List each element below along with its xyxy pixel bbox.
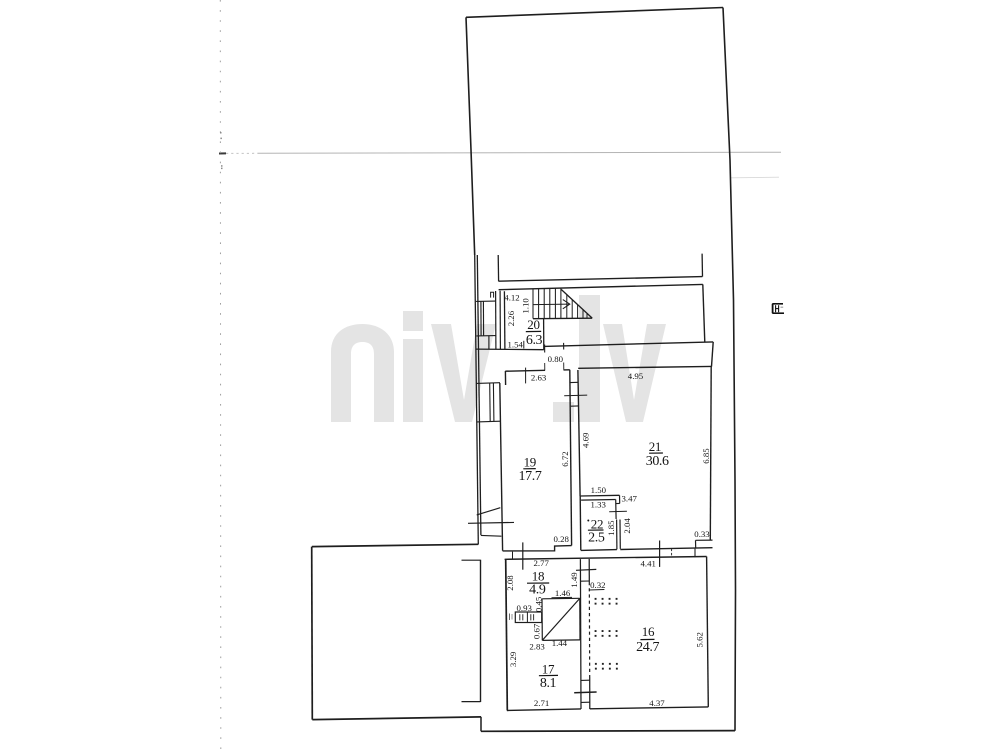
svg-text:1.10: 1.10: [521, 298, 531, 314]
svg-text:2.71: 2.71: [534, 698, 549, 708]
svg-text:0.32: 0.32: [590, 580, 605, 590]
svg-text:2.5: 2.5: [588, 530, 605, 545]
svg-text:16: 16: [642, 624, 655, 639]
svg-text:1.85: 1.85: [606, 520, 616, 536]
svg-text:3.47: 3.47: [621, 494, 637, 504]
svg-text:1.54: 1.54: [507, 340, 523, 350]
svg-text:2.26: 2.26: [506, 310, 516, 326]
svg-text:2.08: 2.08: [505, 575, 515, 591]
svg-text:0.80: 0.80: [548, 354, 564, 364]
svg-text:0.93: 0.93: [516, 603, 532, 613]
svg-text:0.45: 0.45: [534, 596, 544, 612]
svg-text:18: 18: [532, 568, 544, 583]
svg-text:1.49: 1.49: [569, 572, 579, 588]
svg-text:8.1: 8.1: [540, 676, 557, 691]
svg-text:1.33: 1.33: [590, 499, 606, 509]
svg-text:0.67: 0.67: [531, 623, 541, 639]
svg-text:4.12: 4.12: [504, 292, 519, 302]
svg-text:1.44: 1.44: [552, 638, 568, 648]
svg-text:0.28: 0.28: [553, 534, 569, 544]
svg-text:19: 19: [524, 454, 536, 469]
svg-text:3.29: 3.29: [508, 651, 518, 667]
svg-text:24.7: 24.7: [636, 640, 659, 655]
svg-text:17.7: 17.7: [519, 469, 542, 484]
svg-text:0.33: 0.33: [694, 529, 710, 539]
svg-text:21: 21: [649, 439, 661, 454]
svg-text:4.69: 4.69: [580, 432, 590, 448]
svg-text:22: 22: [591, 516, 603, 531]
svg-text:4.41: 4.41: [640, 558, 655, 568]
svg-text:6.3: 6.3: [526, 333, 543, 348]
svg-text:4.95: 4.95: [628, 371, 644, 381]
svg-text:2.63: 2.63: [531, 373, 547, 383]
svg-text:5.62: 5.62: [695, 632, 705, 647]
svg-text:4.9: 4.9: [529, 582, 546, 597]
svg-text:30.6: 30.6: [646, 454, 669, 469]
svg-text:4.37: 4.37: [649, 698, 665, 708]
svg-text:2.04: 2.04: [622, 518, 632, 534]
svg-text:17: 17: [542, 661, 555, 676]
svg-text:2.77: 2.77: [533, 558, 549, 568]
svg-text:20: 20: [527, 317, 539, 332]
svg-text:1.50: 1.50: [591, 485, 607, 495]
svg-text:1.46: 1.46: [555, 588, 571, 598]
svg-text:2.83: 2.83: [529, 642, 545, 652]
svg-text:6.85: 6.85: [701, 448, 711, 464]
svg-text:6.72: 6.72: [560, 451, 570, 466]
